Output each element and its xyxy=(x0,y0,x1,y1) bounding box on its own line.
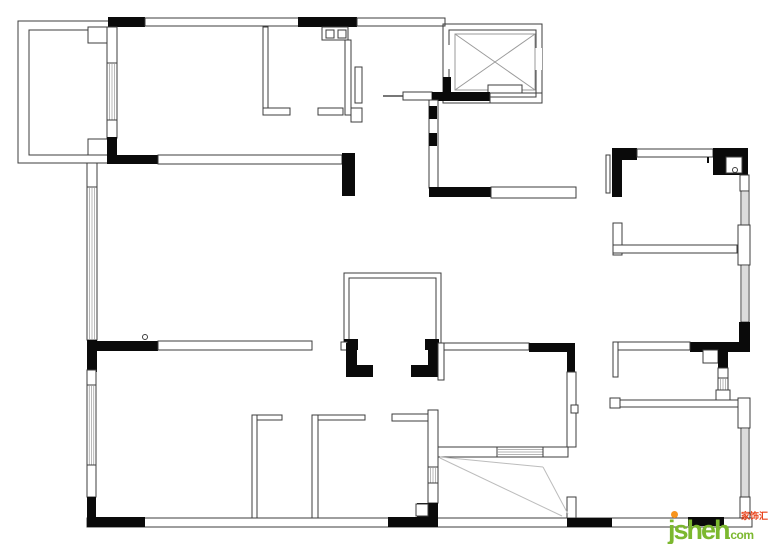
ensuite-wall xyxy=(613,245,737,253)
watermark-tld: .com xyxy=(728,528,754,542)
sliding-door-leaf xyxy=(543,447,568,457)
floorplan-svg xyxy=(0,0,770,544)
pipe-chase xyxy=(606,155,610,193)
door-swing xyxy=(440,458,562,516)
bedroom-partition xyxy=(252,415,257,518)
bedroom-window-sill xyxy=(637,149,713,157)
site-watermark: 家饰汇 jsheh.com xyxy=(668,509,770,544)
mid-wall-sill xyxy=(158,341,312,350)
floor-plan-page: 家饰汇 jsheh.com xyxy=(0,0,770,544)
balcony-inner-wall xyxy=(29,30,108,155)
bathroom-wall xyxy=(263,27,268,113)
elevator-door-sill xyxy=(488,85,522,93)
door-swing xyxy=(543,467,568,514)
watermark-row: jsheh.com xyxy=(668,517,754,544)
bedroom-partition xyxy=(312,415,318,518)
watermark-logo: jsheh xyxy=(668,515,729,544)
sliding-door-leaf xyxy=(438,447,497,457)
center-closet-wall xyxy=(344,273,441,345)
entry-door-frame xyxy=(403,92,432,100)
dining-sill xyxy=(444,343,529,350)
room-divider-sill xyxy=(158,155,342,164)
top-exterior-wall xyxy=(145,18,299,26)
corridor-wall xyxy=(618,400,740,407)
bathroom-door-leaf xyxy=(355,67,362,103)
watermark-orange-dot-icon xyxy=(671,511,678,518)
hallway-cabinet xyxy=(491,187,576,198)
door-stop-symbol xyxy=(143,335,148,340)
